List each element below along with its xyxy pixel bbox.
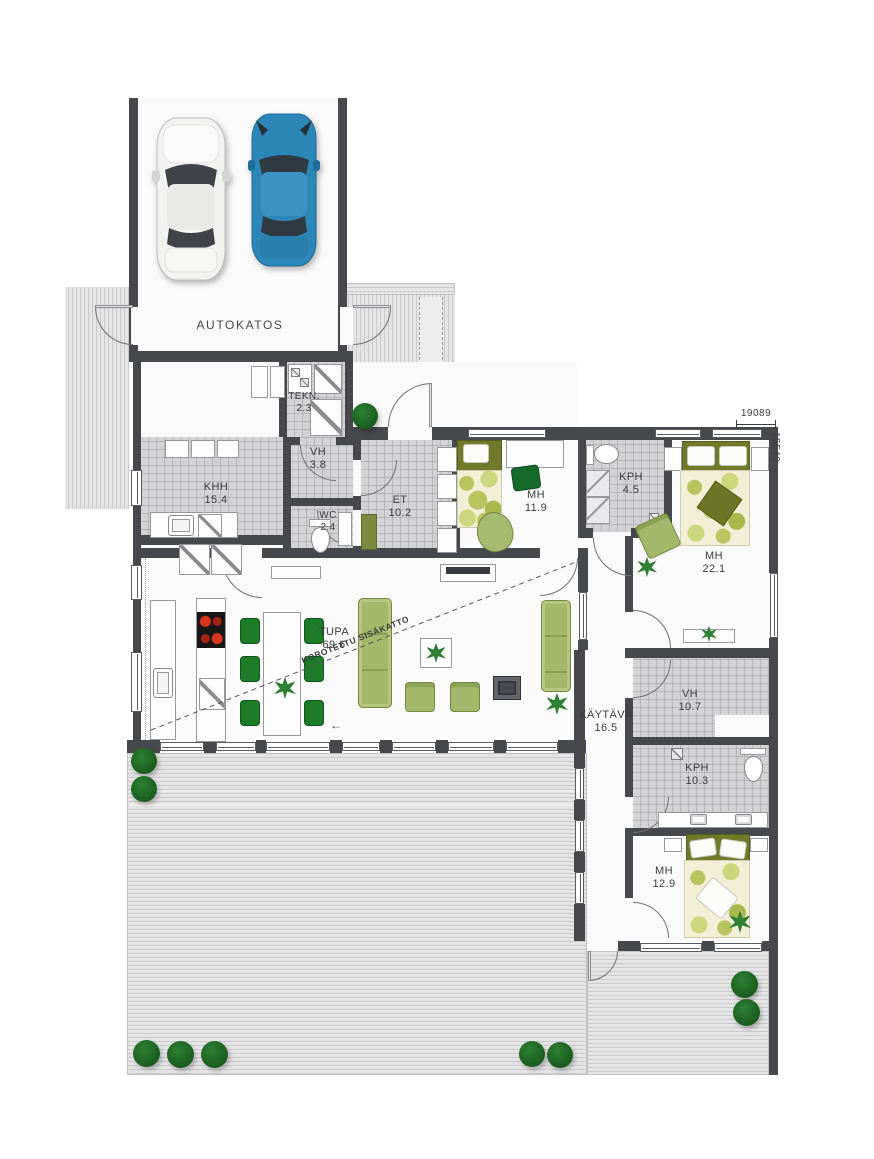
window xyxy=(575,768,584,800)
wall-tupa-east xyxy=(578,640,588,650)
wall-tupa-bottom xyxy=(494,740,506,753)
room-name: VH xyxy=(310,446,327,459)
pillow xyxy=(463,444,489,463)
window xyxy=(714,943,762,952)
room-name: VH xyxy=(678,688,701,701)
dim-line xyxy=(736,424,776,425)
room-area: 4.5 xyxy=(619,484,643,497)
room-area: 22.1 xyxy=(702,563,725,576)
toilet-bowl xyxy=(594,444,619,464)
room-label-tekn: TEKN. 2.3 xyxy=(288,391,319,415)
green-bush xyxy=(167,1041,194,1068)
nightstand xyxy=(664,838,682,852)
green-bush xyxy=(133,1040,160,1067)
heater-coil xyxy=(300,378,309,387)
nightstand xyxy=(751,447,769,471)
wall-house-left xyxy=(133,362,141,470)
wall-mh3-bottom xyxy=(618,941,640,951)
room-name: KPH xyxy=(619,471,643,484)
closet xyxy=(437,528,457,553)
washing-machine xyxy=(198,514,222,538)
roof-edge-band xyxy=(345,283,455,295)
dining-chair xyxy=(240,618,260,644)
toilet-tank xyxy=(740,748,766,755)
room-label-kaytava: KÄYTÄVÄ 16.5 xyxy=(579,709,633,735)
green-bush xyxy=(131,748,157,774)
green-bush xyxy=(733,999,760,1026)
toilet-tank xyxy=(586,445,594,465)
sideboard xyxy=(271,566,321,579)
nightstand xyxy=(750,838,768,852)
wall-carport-bottom xyxy=(129,351,353,362)
wall-tupa-top-w xyxy=(262,548,291,558)
green-bush xyxy=(519,1041,545,1067)
room-name: MH xyxy=(525,489,547,502)
window xyxy=(392,742,436,751)
hall-bench xyxy=(361,514,377,550)
sliding-glass-door xyxy=(266,742,330,751)
fireplace xyxy=(493,676,521,700)
room-area: 11.9 xyxy=(525,502,547,515)
sofa xyxy=(541,600,571,692)
window xyxy=(342,742,380,751)
window xyxy=(640,943,702,952)
room-label-mh1: MH 11.9 xyxy=(525,489,547,515)
room-area: 12.9 xyxy=(652,878,675,891)
wall-mh3-bottom xyxy=(702,941,714,951)
fridge xyxy=(179,544,210,575)
interior-window xyxy=(579,592,587,640)
heater-coil xyxy=(291,368,300,377)
wc-sink xyxy=(338,512,352,546)
cabinet xyxy=(165,440,189,458)
room-label-mh2: MH 22.1 xyxy=(702,550,725,576)
door-leaf xyxy=(95,305,133,308)
khh-counter xyxy=(150,512,238,538)
room-area: 16.5 xyxy=(579,722,633,735)
front-door-leaf xyxy=(429,383,432,427)
room-area: 10.2 xyxy=(388,507,411,520)
room-area: 2.3 xyxy=(288,403,319,415)
nightstand xyxy=(664,447,682,471)
green-bush xyxy=(547,1042,573,1068)
deck-step-line xyxy=(129,804,573,806)
white-car-icon xyxy=(152,116,230,282)
armchair xyxy=(405,682,435,712)
dining-chair xyxy=(304,700,324,726)
wall-wc-top xyxy=(291,498,353,506)
deck-step-line xyxy=(129,790,573,792)
window xyxy=(131,652,142,712)
wall-vh1-east xyxy=(353,443,361,460)
wall-house-left xyxy=(133,600,141,652)
dimension-height: 15540 xyxy=(770,432,781,462)
wall-tupa-bottom xyxy=(330,740,342,753)
dim-tick xyxy=(775,420,776,428)
dining-chair xyxy=(240,656,260,682)
vh2-floor-lower xyxy=(633,715,715,739)
room-name: TEKN. xyxy=(288,391,319,403)
door-gap xyxy=(340,307,353,345)
oven xyxy=(199,678,225,710)
cabinet xyxy=(191,440,215,458)
closet xyxy=(437,447,457,472)
kitchen-sink xyxy=(153,668,173,698)
wall-tupa-bottom xyxy=(256,740,266,753)
wall-mh3-bottom xyxy=(762,941,778,951)
basin xyxy=(735,814,752,825)
pillow xyxy=(719,446,747,466)
wall-kph1-bottom xyxy=(583,528,593,538)
shower-head xyxy=(671,748,683,760)
sliding-door-arrow: ← xyxy=(330,718,342,732)
wall-vh2-kph2 xyxy=(633,737,769,745)
wall-corr-west xyxy=(574,904,585,941)
wall-corr-west xyxy=(574,852,585,872)
room-area: 15.4 xyxy=(204,494,228,507)
freezer xyxy=(211,544,242,575)
door-leaf xyxy=(588,951,591,981)
room-name: KÄYTÄVÄ xyxy=(579,709,633,722)
dim-tick xyxy=(736,420,737,428)
wall-tupa-bottom xyxy=(380,740,392,753)
section-line xyxy=(145,558,146,740)
window xyxy=(216,742,256,751)
closet xyxy=(437,501,457,526)
green-bush xyxy=(731,971,758,998)
window xyxy=(575,820,584,852)
window xyxy=(131,565,142,600)
window xyxy=(448,742,494,751)
room-name: MH xyxy=(702,550,725,563)
wall-house-left xyxy=(133,712,141,742)
room-area: 3.8 xyxy=(310,459,327,472)
window xyxy=(655,429,701,438)
pillow xyxy=(719,838,747,859)
shower xyxy=(586,470,610,497)
room-name: WC xyxy=(319,510,336,522)
tv xyxy=(446,567,490,574)
blue-car-icon xyxy=(248,112,320,268)
window xyxy=(575,872,584,904)
room-name: MH xyxy=(652,865,675,878)
dining-table xyxy=(263,612,301,736)
wall-tupa-bottom xyxy=(436,740,448,753)
room-name: KPH xyxy=(685,762,709,775)
wall-corr-east xyxy=(625,833,633,898)
wall-mh2-bottom xyxy=(625,648,778,658)
khh-sink xyxy=(168,515,194,536)
floor-plan: AUTOKATOS TEKN. 2.3 VH 3.8 KHH 15.4 WC 2… xyxy=(0,0,874,1159)
window xyxy=(160,742,204,751)
cabinet xyxy=(217,440,239,458)
window xyxy=(468,429,546,438)
room-area: 2.4 xyxy=(319,522,336,534)
armchair xyxy=(450,682,480,712)
door-gap xyxy=(588,941,618,951)
room-label-autokatos: AUTOKATOS xyxy=(196,318,283,332)
window xyxy=(131,470,142,506)
room-label-et: ET 10.2 xyxy=(388,494,411,520)
room-label-khh: KHH 15.4 xyxy=(204,481,228,507)
cabinet xyxy=(270,366,285,398)
wall-et-west-top xyxy=(353,427,361,443)
cooktop xyxy=(197,612,225,648)
room-label-wc: WC 2.4 xyxy=(319,510,336,534)
green-bush xyxy=(201,1041,228,1068)
room-name: ET xyxy=(388,494,411,507)
electrical-panel xyxy=(314,364,342,394)
door-leaf xyxy=(353,305,391,308)
pillow xyxy=(689,837,717,858)
green-bush xyxy=(131,776,157,802)
main-deck xyxy=(127,753,587,1075)
wall-tekn-bottom xyxy=(336,437,353,445)
room-area: 10.3 xyxy=(685,775,709,788)
room-label-mh3: MH 12.9 xyxy=(652,865,675,891)
window xyxy=(506,742,558,751)
room-name: KHH xyxy=(204,481,228,494)
wall-tupa-east xyxy=(578,548,588,592)
pillow xyxy=(687,446,715,466)
wall-deck-right xyxy=(769,951,778,1075)
closet xyxy=(437,474,457,499)
dining-chair xyxy=(240,700,260,726)
basin xyxy=(690,814,707,825)
sofa xyxy=(358,598,392,708)
wall-outer-right xyxy=(769,638,778,941)
room-area: 10.7 xyxy=(678,701,701,714)
room-label-kph2: KPH 10.3 xyxy=(685,762,709,788)
shower xyxy=(586,497,610,524)
green-bush xyxy=(352,403,378,429)
wall-corr-west xyxy=(574,800,585,820)
cabinet xyxy=(251,366,268,398)
room-name: AUTOKATOS xyxy=(196,318,283,332)
room-label-vh1: VH 3.8 xyxy=(310,446,327,472)
wall-mh1-kph1 xyxy=(578,440,586,538)
front-door-gap xyxy=(388,427,432,440)
window xyxy=(770,573,778,638)
wall-vh1-east xyxy=(353,496,361,510)
window xyxy=(712,429,762,438)
room-label-kph1: KPH 4.5 xyxy=(619,471,643,497)
desk-chair xyxy=(510,464,541,492)
dimension-width: 19089 xyxy=(733,408,779,419)
room-label-vh2: VH 10.7 xyxy=(678,688,701,714)
